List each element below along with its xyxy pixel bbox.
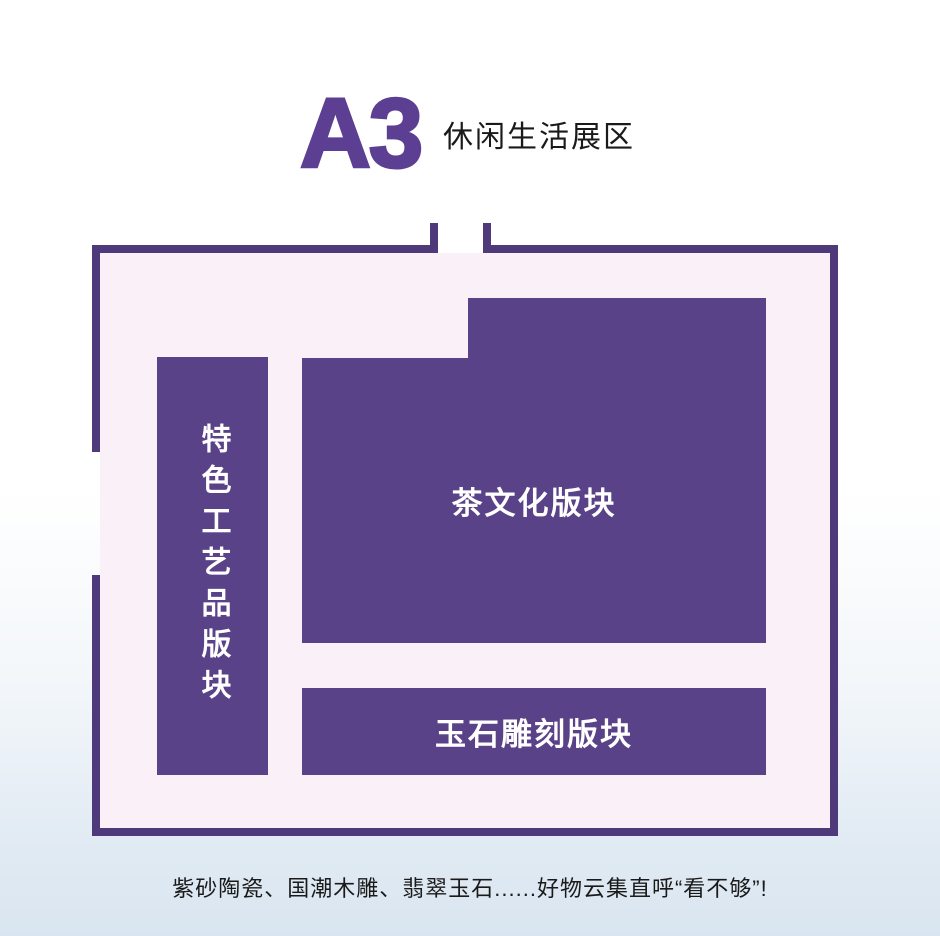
block-special-crafts-label: 特色工艺品版块 — [191, 423, 235, 710]
entrance-stub-left — [430, 223, 438, 253]
wall-left-lower-segment — [92, 575, 100, 836]
floor-plan: 特色工艺品版块 茶文化版块 玉石雕刻版块 — [0, 0, 940, 936]
block-tea-culture-upper — [468, 298, 766, 360]
block-jade-carving-label: 玉石雕刻版块 — [435, 709, 633, 754]
entrance-stub-right — [483, 223, 491, 253]
block-special-crafts: 特色工艺品版块 — [157, 357, 268, 775]
block-jade-carving: 玉石雕刻版块 — [302, 688, 766, 775]
wall-top-left-segment — [92, 245, 438, 253]
wall-top-right-segment — [483, 245, 838, 253]
block-tea-culture: 茶文化版块 — [302, 358, 766, 643]
caption: 紫砂陶瓷、国潮木雕、翡翠玉石......好物云集直呼“看不够”! — [0, 871, 940, 903]
wall-bottom — [92, 828, 838, 836]
exhibition-map-poster: A3 休闲生活展区 特色工艺品版块 茶文化版块 玉石雕刻版块 紫砂陶瓷、国潮木雕… — [0, 0, 940, 936]
wall-right — [830, 245, 838, 836]
block-tea-culture-label: 茶文化版块 — [452, 478, 617, 523]
wall-left-upper-segment — [92, 245, 100, 452]
